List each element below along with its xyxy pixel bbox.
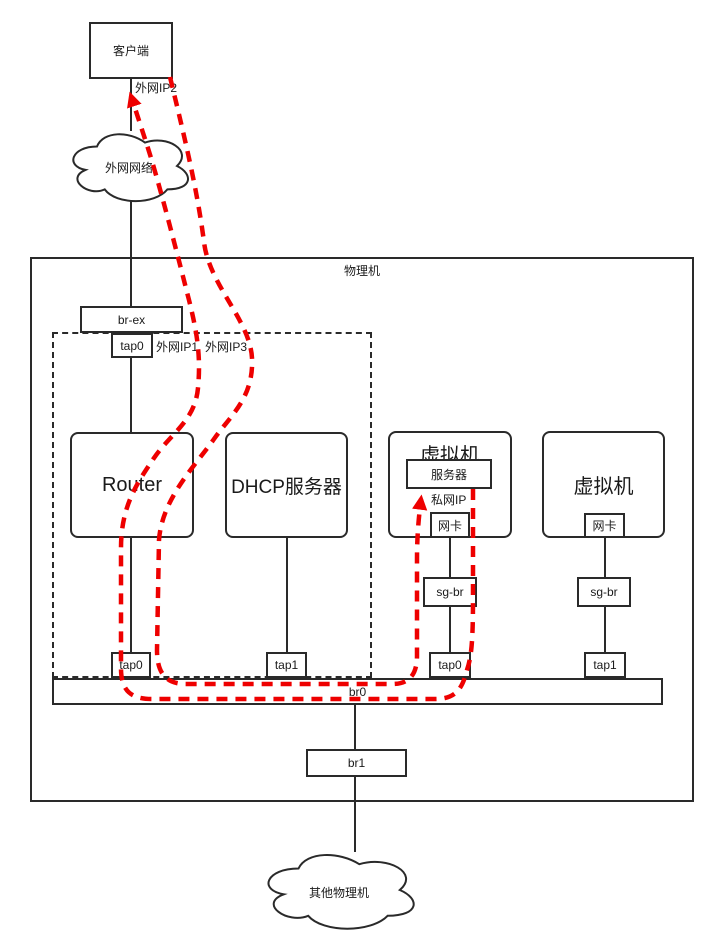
br-ex-box: br-ex [80, 306, 183, 333]
vm1-sgbr-label: sg-br [436, 585, 463, 599]
vm2-sgbr-label: sg-br [590, 585, 617, 599]
ext-ip3-label: 外网IP3 [205, 340, 247, 354]
br1-label: br1 [348, 756, 365, 770]
external-network-label: 外网网络 [65, 159, 193, 176]
br1-box: br1 [306, 749, 407, 777]
private-ip-label: 私网IP [431, 493, 466, 507]
br0-label: br0 [349, 685, 366, 699]
network-diagram: 物理机 br0 客户端 br-ex tap0 Router DHCP服务器 虚拟… [0, 0, 720, 951]
vm1-sgbr-box: sg-br [423, 577, 477, 607]
vm2-nic-box: 网卡 [584, 513, 625, 538]
ext-ip1-label: 外网IP1 [156, 340, 198, 354]
ext-ip2-label: 外网IP2 [135, 81, 177, 95]
br-ex-label: br-ex [118, 313, 145, 327]
router-label: Router [102, 474, 162, 497]
vm2-title: 虚拟机 [574, 470, 634, 499]
vm1-nic-box: 网卡 [430, 512, 470, 538]
brex-tap0-label: tap0 [120, 339, 143, 353]
client-box: 客户端 [89, 22, 173, 79]
client-label: 客户端 [113, 42, 149, 59]
vm1-tap0-box: tap0 [429, 652, 471, 678]
vm2-tap1-box: tap1 [584, 652, 626, 678]
other-hosts-label: 其他物理机 [258, 884, 420, 901]
dhcp-server-box: DHCP服务器 [225, 432, 348, 538]
br0-bridge-bar: br0 [52, 678, 663, 705]
vm2-sgbr-box: sg-br [577, 577, 631, 607]
vm1-tap0-label: tap0 [438, 658, 461, 672]
router-tap0-label: tap0 [119, 658, 142, 672]
dhcp-tap1-box: tap1 [266, 652, 307, 678]
vm2-nic-label: 网卡 [592, 517, 616, 534]
brex-tap0-box: tap0 [111, 333, 153, 358]
vm1-server-label: 服务器 [431, 466, 467, 483]
router-box: Router [70, 432, 194, 538]
dhcp-tap1-label: tap1 [275, 658, 298, 672]
vm1-nic-label: 网卡 [438, 517, 462, 534]
dhcp-server-label: DHCP服务器 [231, 472, 342, 499]
vm1-server-box: 服务器 [406, 459, 492, 489]
router-tap0-box: tap0 [111, 652, 151, 678]
physical-machine-label: 物理机 [32, 262, 692, 279]
vm2-tap1-label: tap1 [593, 658, 616, 672]
